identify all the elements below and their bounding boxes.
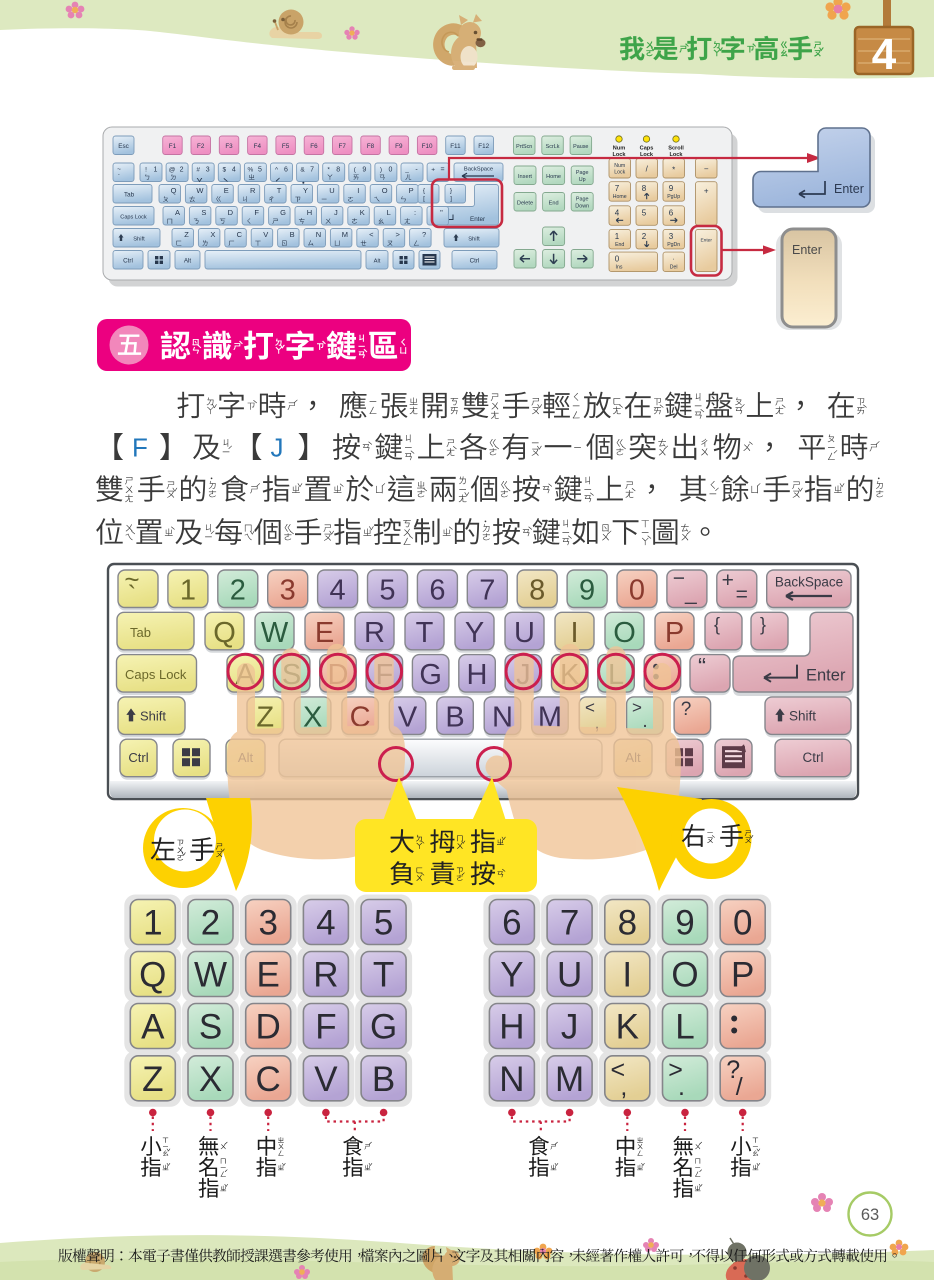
svg-text:Shift: Shift: [789, 708, 816, 723]
svg-text:D: D: [228, 208, 234, 217]
svg-text:4: 4: [615, 208, 620, 217]
svg-text:C: C: [237, 230, 243, 239]
svg-text:7: 7: [615, 184, 620, 193]
svg-text:V: V: [398, 701, 418, 733]
svg-text:~: ~: [117, 166, 121, 173]
svg-text:6: 6: [502, 904, 521, 943]
svg-text:F9: F9: [395, 143, 403, 150]
svg-text:C: C: [256, 1060, 281, 1099]
svg-text:K: K: [616, 1008, 639, 1047]
svg-text:F5: F5: [282, 143, 290, 150]
svg-text:Caps: Caps: [640, 146, 654, 152]
svg-text:+: +: [704, 187, 709, 196]
svg-text:=: =: [736, 583, 748, 606]
svg-text:0: 0: [733, 904, 752, 943]
svg-text:F: F: [132, 433, 148, 463]
svg-text:4: 4: [232, 167, 236, 174]
svg-text:S: S: [201, 208, 206, 217]
svg-text:B: B: [290, 230, 295, 239]
svg-text:63: 63: [861, 1206, 879, 1224]
svg-text:·: ·: [673, 256, 675, 263]
svg-text:&: &: [300, 167, 305, 174]
svg-text:X: X: [210, 230, 215, 239]
svg-text:1: 1: [143, 904, 162, 943]
svg-text:8: 8: [618, 904, 637, 943]
svg-text:`: `: [118, 174, 120, 181]
svg-text:=: =: [441, 167, 445, 174]
svg-text:PrtScn: PrtScn: [516, 144, 532, 150]
svg-text:Q: Q: [213, 617, 236, 649]
svg-text:N: N: [499, 1060, 524, 1099]
svg-text:T: T: [277, 186, 282, 195]
svg-text:*: *: [672, 166, 675, 175]
svg-text:Ctrl: Ctrl: [123, 258, 133, 265]
svg-text:+: +: [722, 569, 734, 592]
svg-text:P: P: [665, 617, 684, 649]
svg-text:J: J: [271, 433, 284, 463]
svg-text:9: 9: [362, 167, 366, 174]
svg-text:1: 1: [615, 232, 620, 241]
svg-text:>: >: [632, 698, 642, 717]
svg-text:6: 6: [429, 575, 445, 607]
svg-text:Ctrl: Ctrl: [803, 750, 824, 765]
svg-text:R: R: [313, 956, 338, 995]
svg-text:W: W: [261, 617, 289, 649]
svg-text:Q: Q: [171, 186, 177, 195]
svg-text:Del: Del: [670, 265, 678, 271]
svg-text:H: H: [467, 659, 488, 691]
svg-text:/: /: [736, 1073, 743, 1101]
svg-text:Insert: Insert: [518, 174, 532, 180]
svg-text:F2: F2: [197, 143, 205, 150]
svg-text:0: 0: [388, 167, 392, 174]
svg-text:I: I: [622, 956, 632, 995]
svg-text:U: U: [557, 956, 582, 995]
svg-text:F7: F7: [339, 143, 347, 150]
svg-text:6: 6: [669, 208, 674, 217]
svg-text:Ins: Ins: [616, 265, 623, 271]
svg-text:3: 3: [280, 575, 296, 607]
svg-text:Home: Home: [613, 194, 627, 200]
svg-text:9: 9: [669, 184, 674, 193]
svg-text:N: N: [316, 230, 321, 239]
svg-text:Ctrl: Ctrl: [470, 258, 480, 265]
svg-text:F: F: [254, 208, 259, 217]
svg-text:Page: Page: [576, 197, 589, 203]
svg-text:3: 3: [669, 232, 674, 241]
svg-text:3: 3: [206, 167, 210, 174]
svg-text:>: >: [396, 230, 401, 239]
svg-text:P: P: [731, 956, 754, 995]
svg-text:“: “: [698, 654, 706, 681]
svg-text:[: [: [423, 196, 425, 203]
svg-text:W: W: [194, 956, 227, 995]
svg-text:9: 9: [675, 904, 694, 943]
svg-text:Lock: Lock: [614, 170, 625, 176]
svg-text:0: 0: [615, 255, 620, 264]
svg-text:2: 2: [201, 904, 220, 943]
svg-text:5: 5: [379, 575, 395, 607]
svg-text:): ): [380, 167, 382, 174]
svg-text:,: ,: [620, 1073, 627, 1101]
svg-text:2: 2: [180, 167, 184, 174]
svg-text:V: V: [263, 230, 268, 239]
svg-text:Q: Q: [139, 956, 166, 995]
svg-text:J: J: [561, 1008, 579, 1047]
svg-text:9: 9: [579, 575, 595, 607]
svg-text:Tab: Tab: [130, 625, 151, 640]
svg-text:}: }: [760, 614, 766, 634]
svg-text:8: 8: [529, 575, 545, 607]
svg-text:E: E: [257, 956, 280, 995]
svg-text:J: J: [334, 208, 338, 217]
svg-text:5: 5: [374, 904, 393, 943]
svg-text:7: 7: [310, 167, 314, 174]
svg-text:3: 3: [258, 904, 277, 943]
svg-text:Shift: Shift: [133, 237, 145, 243]
svg-text:<: <: [369, 230, 374, 239]
svg-text:F11: F11: [450, 143, 461, 150]
svg-text:7: 7: [560, 904, 579, 943]
svg-text:Y: Y: [500, 956, 523, 995]
svg-text:_: _: [684, 582, 697, 605]
svg-text:F12: F12: [478, 143, 489, 150]
svg-text:R: R: [250, 186, 256, 195]
svg-text:+: +: [431, 167, 435, 174]
svg-text:]: ]: [450, 196, 452, 203]
svg-text:Page: Page: [576, 170, 589, 176]
svg-text:S: S: [199, 1008, 222, 1047]
svg-text:4: 4: [872, 30, 897, 79]
svg-text:Enter: Enter: [470, 216, 485, 223]
svg-text:Pause: Pause: [573, 144, 588, 150]
svg-text:Esc: Esc: [118, 143, 129, 150]
svg-text:1: 1: [180, 575, 196, 607]
svg-text:L: L: [675, 1008, 694, 1047]
svg-text:F: F: [315, 1008, 336, 1047]
svg-text:Enter: Enter: [834, 182, 864, 196]
svg-text:7: 7: [479, 575, 495, 607]
svg-text:H: H: [499, 1008, 524, 1047]
svg-text:F10: F10: [422, 143, 433, 150]
svg-text:Caps Lock: Caps Lock: [125, 667, 187, 682]
svg-text:−: −: [704, 165, 709, 174]
svg-text:Home: Home: [546, 174, 561, 180]
svg-text:Alt: Alt: [374, 259, 381, 265]
svg-text:0: 0: [629, 575, 645, 607]
svg-text:End: End: [615, 242, 624, 248]
svg-text:F3: F3: [225, 143, 233, 150]
svg-text:Up: Up: [579, 177, 586, 183]
svg-text:U: U: [329, 186, 334, 195]
svg-text:BackSpace: BackSpace: [464, 167, 493, 173]
svg-text:{: {: [714, 614, 720, 634]
svg-text:O: O: [671, 956, 698, 995]
svg-text:F6: F6: [310, 143, 318, 150]
svg-text:T: T: [373, 956, 394, 995]
svg-text:Scroll: Scroll: [668, 146, 684, 152]
svg-text:Down: Down: [575, 204, 589, 210]
svg-text:8: 8: [336, 167, 340, 174]
svg-text:E: E: [224, 186, 229, 195]
svg-text:Enter: Enter: [806, 667, 846, 685]
svg-text:P: P: [409, 186, 414, 195]
svg-text:5: 5: [642, 208, 647, 217]
svg-text:M: M: [555, 1060, 584, 1099]
svg-text:Enter: Enter: [700, 237, 712, 243]
svg-text:Ctrl: Ctrl: [128, 750, 148, 765]
svg-text:W: W: [196, 186, 204, 195]
svg-text:Enter: Enter: [792, 243, 822, 257]
svg-text:6: 6: [284, 167, 288, 174]
svg-text:Delete: Delete: [517, 201, 533, 207]
svg-text:#: #: [196, 167, 200, 174]
svg-text:E: E: [315, 617, 334, 649]
svg-text:?: ?: [681, 699, 692, 720]
svg-text:PgDn: PgDn: [667, 242, 680, 248]
svg-text:1: 1: [154, 167, 158, 174]
svg-text:G: G: [280, 208, 286, 217]
svg-text:$: $: [222, 167, 226, 174]
svg-text:.: .: [678, 1073, 685, 1101]
svg-text:ScrLk: ScrLk: [546, 144, 560, 150]
svg-text:Caps Lock: Caps Lock: [120, 215, 147, 221]
svg-text:PgUp: PgUp: [667, 194, 680, 200]
svg-text:2: 2: [230, 575, 246, 607]
svg-text:5: 5: [258, 167, 262, 174]
svg-text:M: M: [342, 230, 348, 239]
svg-text:G: G: [370, 1008, 397, 1047]
svg-text:Y: Y: [465, 617, 484, 649]
svg-text:?: ?: [422, 230, 426, 239]
svg-text:%: %: [248, 167, 254, 174]
svg-text:O: O: [613, 617, 636, 649]
svg-text:Shift: Shift: [140, 708, 166, 723]
svg-text:Tab: Tab: [124, 192, 135, 199]
svg-text:Z: Z: [142, 1060, 163, 1099]
svg-text:X: X: [199, 1060, 222, 1099]
svg-text:O: O: [382, 186, 388, 195]
svg-text:4: 4: [316, 904, 335, 943]
svg-text:F1: F1: [169, 143, 177, 150]
svg-text:Num: Num: [613, 146, 625, 152]
svg-text:A: A: [141, 1008, 165, 1047]
svg-text:End: End: [549, 201, 559, 207]
svg-text:A: A: [175, 208, 180, 217]
svg-text:8: 8: [642, 184, 647, 193]
svg-text:V: V: [314, 1060, 338, 1099]
svg-text:`: `: [128, 580, 137, 610]
svg-text:D: D: [256, 1008, 281, 1047]
svg-text:I: I: [357, 186, 359, 195]
svg-text:!: !: [145, 167, 147, 174]
svg-text:T: T: [416, 617, 434, 649]
svg-text:B: B: [445, 701, 464, 733]
svg-text:L: L: [387, 208, 391, 217]
svg-text:K: K: [360, 208, 365, 217]
svg-text:Y: Y: [303, 186, 308, 195]
svg-text:−: −: [673, 567, 685, 590]
svg-text:U: U: [514, 617, 535, 649]
svg-text:BackSpace: BackSpace: [775, 575, 843, 590]
svg-text:F8: F8: [367, 143, 375, 150]
svg-text:Shift: Shift: [468, 237, 480, 243]
svg-text:": ": [440, 208, 443, 217]
svg-text:Z: Z: [184, 230, 189, 239]
svg-text::: :: [414, 208, 416, 217]
svg-text:R: R: [364, 617, 385, 649]
svg-text:H: H: [307, 208, 312, 217]
svg-text:G: G: [419, 659, 442, 691]
svg-text:Num: Num: [614, 163, 625, 169]
svg-text:B: B: [372, 1060, 395, 1099]
svg-text:@: @: [169, 167, 176, 174]
svg-text:4: 4: [330, 575, 346, 607]
svg-text:Alt: Alt: [184, 258, 192, 265]
svg-text:_: _: [404, 167, 409, 174]
svg-text:F4: F4: [254, 143, 262, 150]
svg-text:2: 2: [642, 232, 647, 241]
